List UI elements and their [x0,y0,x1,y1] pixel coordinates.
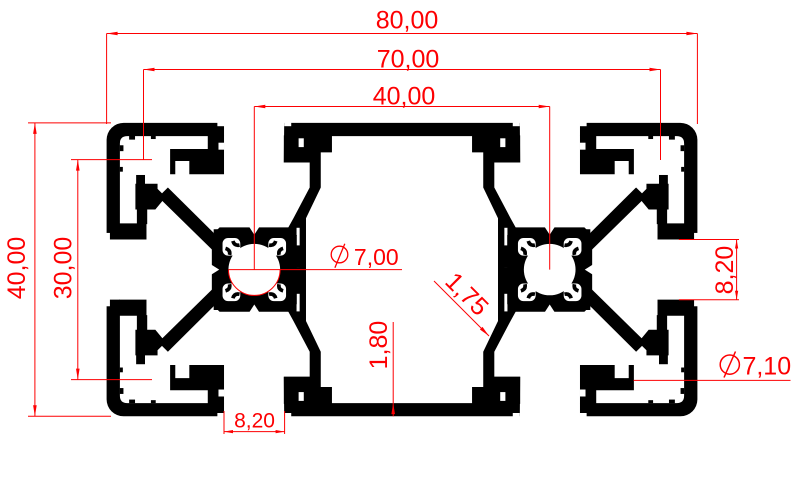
svg-text:40,00: 40,00 [3,237,31,300]
svg-text:7,10: 7,10 [742,352,791,380]
svg-text:8,20: 8,20 [234,409,275,432]
svg-text:80,00: 80,00 [376,7,439,35]
svg-text:7,00: 7,00 [354,244,399,270]
svg-text:1,80: 1,80 [365,321,393,370]
svg-text:8,20: 8,20 [711,246,739,295]
svg-text:70,00: 70,00 [377,46,440,74]
svg-text:40,00: 40,00 [373,83,436,111]
svg-text:30,00: 30,00 [50,237,78,300]
